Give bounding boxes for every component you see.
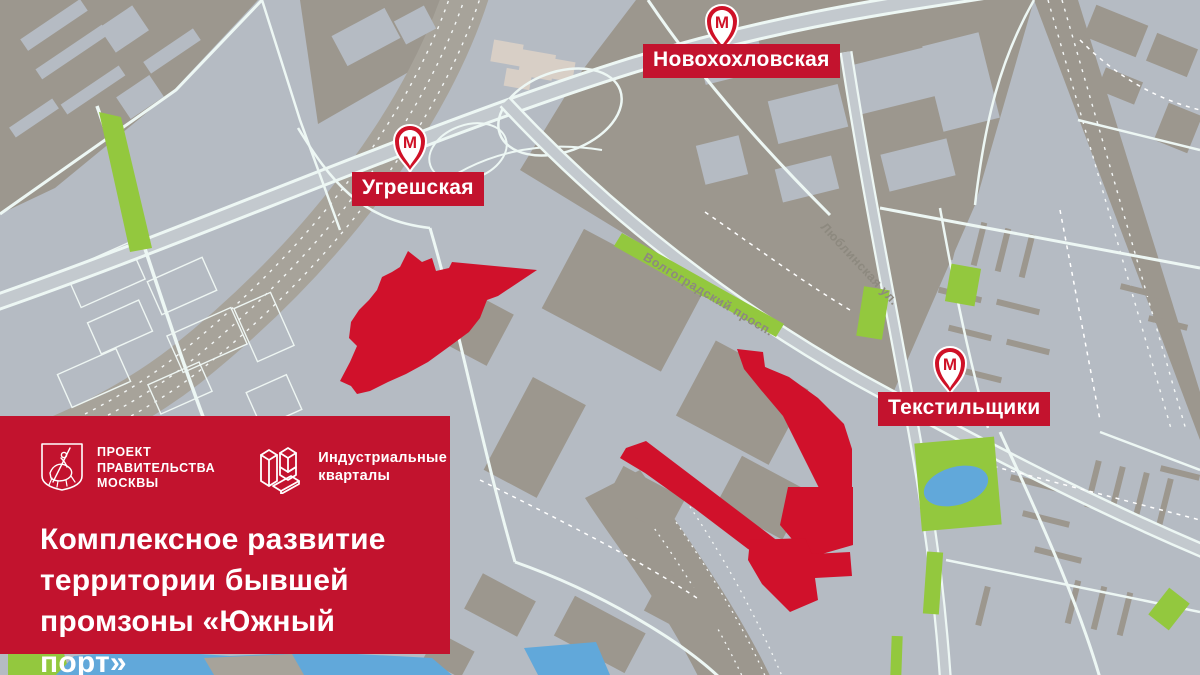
svg-text:М: М bbox=[715, 13, 729, 32]
station-label-tekstilshchiki: Текстильщики bbox=[878, 392, 1050, 426]
moscow-coat-of-arms-icon bbox=[40, 442, 84, 492]
industrial-quarters-logo: Индустриальные кварталы bbox=[255, 442, 447, 494]
industrial-quarters-text: Индустриальные кварталы bbox=[318, 450, 447, 494]
metro-pin-icon: М bbox=[930, 344, 970, 396]
info-panel: ПРОЕКТ ПРАВИТЕЛЬСТВА МОСКВЫ Индустриальн… bbox=[0, 416, 450, 654]
station-label-novokhokhlovskaya: Новохохловская bbox=[643, 44, 840, 78]
moscow-government-logo: ПРОЕКТ ПРАВИТЕЛЬСТВА МОСКВЫ bbox=[40, 442, 215, 492]
station-label-ugreshskaya: Угрешская bbox=[352, 172, 484, 206]
industrial-quarters-icon bbox=[255, 442, 305, 494]
infographic-canvas: Волгоградский просп. Люблинская ул. М Но… bbox=[0, 0, 1200, 675]
svg-text:М: М bbox=[403, 133, 417, 152]
moscow-government-text: ПРОЕКТ ПРАВИТЕЛЬСТВА МОСКВЫ bbox=[97, 445, 215, 492]
page-title: Комплексное развитие территории бывшей п… bbox=[40, 519, 430, 675]
logos-row: ПРОЕКТ ПРАВИТЕЛЬСТВА МОСКВЫ Индустриальн… bbox=[40, 442, 430, 494]
metro-pin-icon: М bbox=[390, 122, 430, 174]
svg-text:М: М bbox=[943, 355, 957, 374]
metro-pin-ugreshskaya[interactable]: М bbox=[390, 122, 430, 174]
metro-pin-tekstilshchiki[interactable]: М bbox=[930, 344, 970, 396]
